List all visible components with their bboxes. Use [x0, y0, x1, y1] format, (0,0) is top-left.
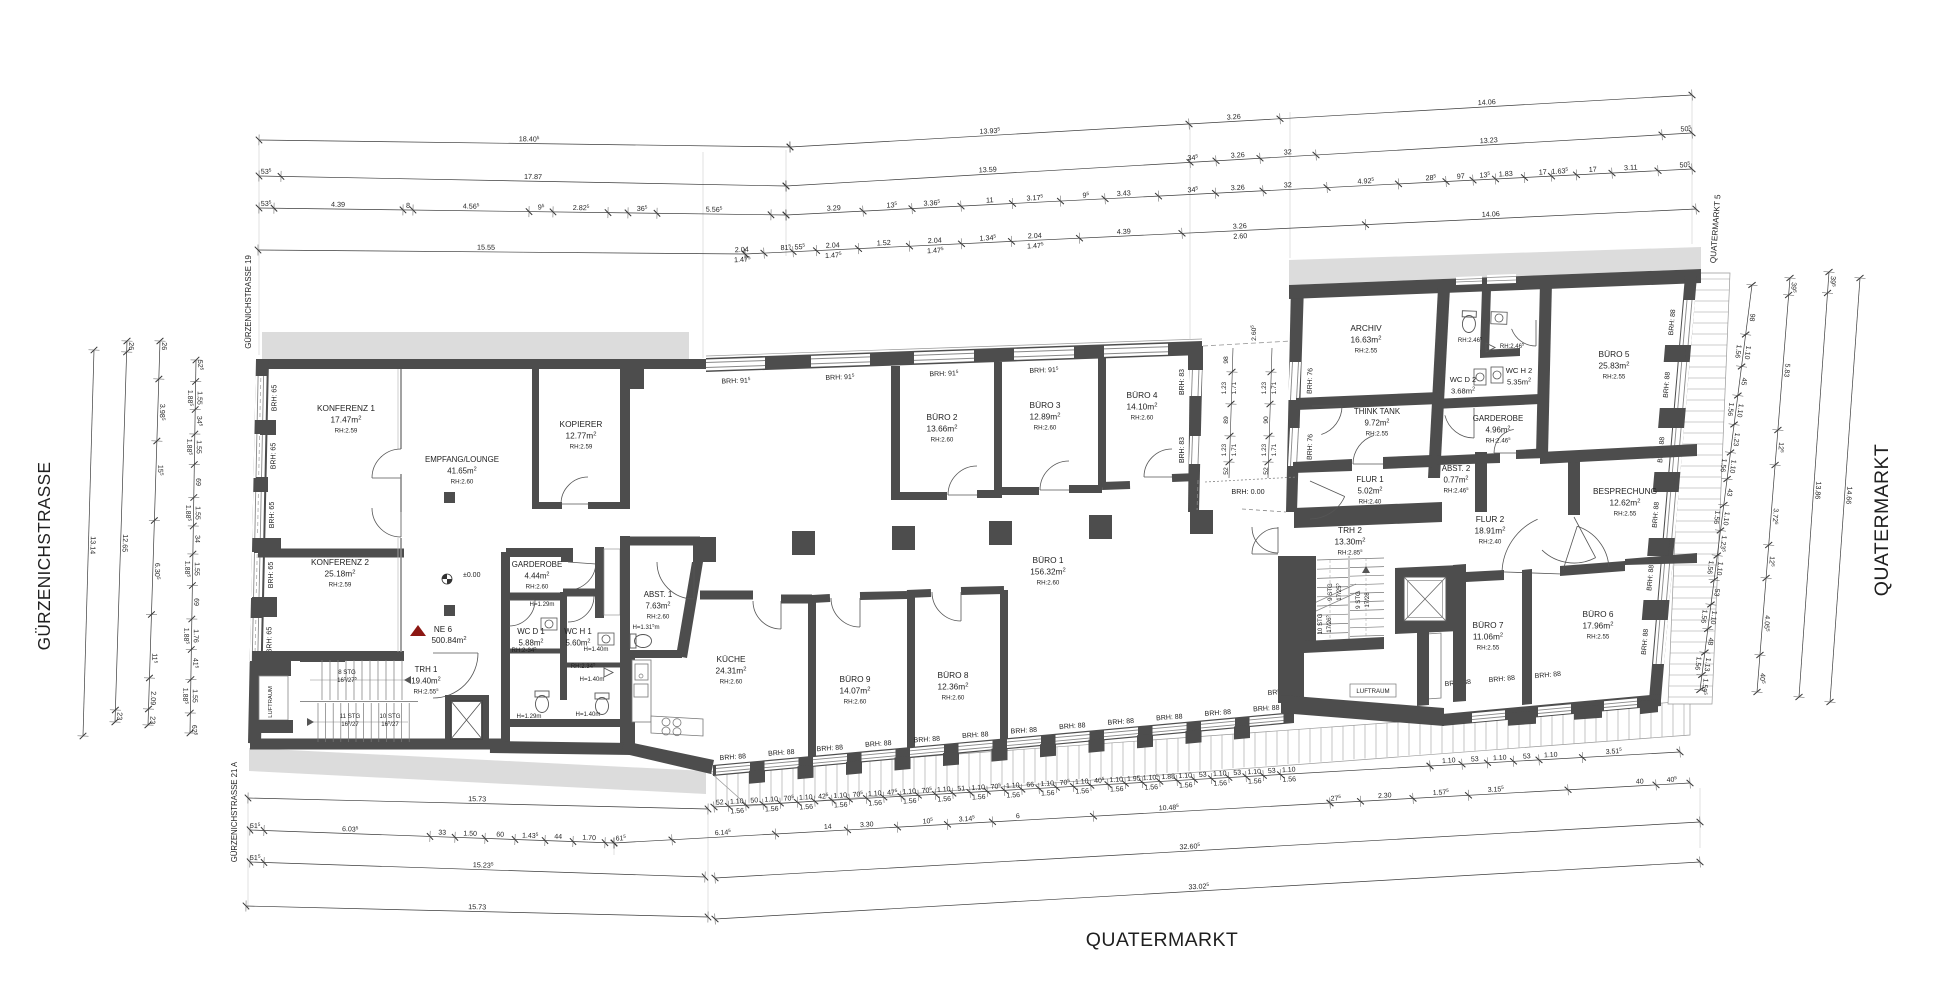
svg-text:RH:2.40: RH:2.40	[1479, 539, 1502, 546]
svg-text:H=1.40m: H=1.40m	[580, 676, 605, 683]
svg-text:1.10: 1.10	[1006, 782, 1020, 790]
svg-text:1.56: 1.56	[765, 806, 779, 814]
svg-text:1.10: 1.10	[937, 786, 951, 794]
svg-text:32: 32	[1284, 180, 1292, 189]
svg-text:BRH: 915: BRH: 915	[1029, 365, 1059, 374]
svg-text:2.04: 2.04	[928, 235, 942, 245]
svg-text:1.10: 1.10	[1040, 780, 1054, 788]
svg-text:1.10: 1.10	[971, 784, 985, 792]
svg-text:1.23: 1.23	[1221, 443, 1228, 456]
svg-text:1.56: 1.56	[1110, 786, 1124, 794]
svg-text:KÜCHE: KÜCHE	[716, 654, 746, 664]
svg-text:BRH: 83: BRH: 83	[1179, 437, 1186, 463]
svg-text:14.66: 14.66	[1844, 486, 1854, 505]
svg-text:60: 60	[496, 832, 504, 839]
svg-text:53: 53	[1268, 768, 1276, 775]
svg-text:3.26: 3.26	[1231, 150, 1246, 160]
svg-text:3.11: 3.11	[1624, 163, 1638, 173]
svg-text:1.56: 1.56	[1075, 788, 1089, 796]
svg-text:2.04: 2.04	[826, 240, 840, 250]
svg-text:BÜRO 5: BÜRO 5	[1599, 349, 1630, 359]
svg-text:ARCHIV: ARCHIV	[1350, 323, 1382, 333]
svg-text:51: 51	[957, 785, 965, 792]
svg-text:5.02m2: 5.02m2	[1357, 487, 1382, 496]
svg-text:1.10: 1.10	[833, 792, 847, 800]
svg-text:QUATERMARKT: QUATERMARKT	[1086, 929, 1238, 951]
svg-text:1.56: 1.56	[730, 808, 744, 816]
svg-text:14.06: 14.06	[1482, 209, 1500, 219]
svg-text:1.23: 1.23	[1261, 381, 1268, 394]
svg-text:GARDEROBE: GARDEROBE	[1473, 414, 1523, 423]
svg-text:BRH: 76: BRH: 76	[1307, 368, 1315, 394]
svg-text:1.55: 1.55	[193, 562, 200, 576]
svg-text:1.56: 1.56	[903, 798, 917, 806]
svg-text:98: 98	[1223, 356, 1230, 364]
svg-text:24.31m2: 24.31m2	[716, 666, 747, 676]
svg-text:13.30m2: 13.30m2	[1335, 537, 1366, 547]
svg-text:4.39: 4.39	[1117, 227, 1131, 237]
svg-text:1.56: 1.56	[799, 804, 813, 812]
svg-text:98: 98	[1748, 313, 1756, 322]
svg-text:97: 97	[1457, 171, 1465, 180]
svg-text:13.86: 13.86	[1813, 481, 1823, 500]
svg-text:50: 50	[750, 797, 758, 804]
svg-text:RH:2.465: RH:2.465	[1486, 436, 1512, 444]
svg-text:RH:2.345: RH:2.345	[571, 662, 596, 670]
svg-text:RH:2.60: RH:2.60	[942, 695, 965, 702]
svg-text:10 STG: 10 STG	[1317, 613, 1324, 634]
svg-text:H=1.315m: H=1.315m	[632, 623, 659, 631]
svg-text:WC H 1: WC H 1	[564, 627, 592, 636]
svg-text:8: 8	[406, 201, 410, 210]
svg-text:17: 17	[1589, 165, 1597, 174]
svg-text:BÜRO 1: BÜRO 1	[1033, 555, 1064, 565]
svg-text:165/27: 165/27	[381, 720, 399, 728]
svg-text:RH:2.60: RH:2.60	[526, 584, 549, 591]
svg-text:26: 26	[160, 342, 169, 350]
svg-text:90: 90	[1263, 416, 1270, 424]
svg-text:1.10: 1.10	[1544, 752, 1558, 760]
svg-text:BESPRECHUNG: BESPRECHUNG	[1593, 486, 1657, 496]
svg-text:EMPFANG/LOUNGE: EMPFANG/LOUNGE	[425, 455, 499, 464]
svg-text:GÜRZENICHSTRASSE 19: GÜRZENICHSTRASSE 19	[244, 255, 253, 349]
svg-text:1.10: 1.10	[1178, 772, 1192, 780]
svg-text:40: 40	[1636, 778, 1644, 785]
svg-text:KONFERENZ 1: KONFERENZ 1	[317, 403, 375, 413]
svg-text:156.32m2: 156.32m2	[1030, 567, 1066, 577]
svg-text:8 STG: 8 STG	[338, 669, 356, 676]
svg-text:3.68m2: 3.68m2	[1451, 387, 1475, 396]
svg-text:RH:2.55: RH:2.55	[1614, 511, 1637, 518]
svg-text:7.63m2: 7.63m2	[645, 602, 670, 611]
svg-text:32: 32	[1283, 147, 1292, 156]
svg-text:TRH 2: TRH 2	[1338, 525, 1362, 535]
svg-text:QUATERMARKT: QUATERMARKT	[1871, 444, 1893, 596]
svg-text:WC D 1: WC D 1	[517, 627, 545, 636]
svg-text:NE 6: NE 6	[434, 625, 453, 634]
svg-text:13.66m2: 13.66m2	[927, 424, 958, 434]
svg-text:1.10: 1.10	[1247, 769, 1261, 777]
svg-text:52: 52	[1263, 467, 1270, 475]
svg-text:13.59: 13.59	[979, 164, 997, 174]
svg-text:2.60: 2.60	[1233, 231, 1247, 241]
svg-text:BRH: 915: BRH: 915	[721, 376, 751, 385]
svg-text:FLUR 2: FLUR 2	[1476, 514, 1505, 524]
svg-text:15.55: 15.55	[477, 243, 495, 252]
svg-text:WC H 2: WC H 2	[1506, 366, 1533, 375]
svg-text:5.60m2: 5.60m2	[565, 639, 590, 648]
svg-text:69: 69	[192, 598, 199, 606]
svg-text:BRH: 0.00: BRH: 0.00	[1231, 487, 1264, 496]
svg-text:1.95: 1.95	[1127, 775, 1141, 783]
svg-text:RH:2.40: RH:2.40	[1359, 499, 1382, 506]
svg-text:25.18m2: 25.18m2	[325, 569, 356, 579]
svg-text:1.10: 1.10	[1109, 776, 1123, 784]
svg-text:RH:2.60: RH:2.60	[451, 479, 474, 486]
svg-text:48: 48	[1706, 637, 1714, 646]
svg-text:1.10: 1.10	[1442, 757, 1456, 765]
svg-text:1.88: 1.88	[1161, 773, 1175, 781]
svg-text:RH:2.55: RH:2.55	[1366, 431, 1389, 438]
svg-text:1.56: 1.56	[972, 794, 986, 802]
svg-text:1.10: 1.10	[1075, 778, 1089, 786]
svg-text:1.10: 1.10	[1213, 770, 1227, 778]
svg-text:0.77m2: 0.77m2	[1443, 476, 1468, 485]
svg-text:1.83: 1.83	[1499, 169, 1513, 179]
svg-text:26: 26	[127, 342, 136, 350]
svg-text:3.30: 3.30	[860, 821, 874, 829]
svg-text:165/275: 165/275	[337, 676, 357, 684]
svg-text:KONFERENZ 2: KONFERENZ 2	[311, 557, 369, 567]
svg-text:17: 17	[1539, 167, 1547, 176]
svg-text:34: 34	[193, 535, 200, 543]
svg-text:1.71: 1.71	[1231, 443, 1238, 456]
svg-text:53: 53	[1233, 770, 1241, 777]
svg-text:RH:2.59: RH:2.59	[570, 444, 593, 451]
svg-text:BÜRO 3: BÜRO 3	[1030, 400, 1061, 410]
svg-text:BRH: 83: BRH: 83	[1179, 369, 1186, 395]
svg-text:BRH: 76: BRH: 76	[1307, 434, 1315, 460]
svg-text:ABST. 2: ABST. 2	[1442, 464, 1471, 473]
svg-text:9 STG: 9 STG	[1327, 583, 1334, 601]
svg-text:53: 53	[1523, 753, 1531, 760]
svg-text:1.56: 1.56	[834, 802, 848, 810]
svg-text:RH:2.55: RH:2.55	[1477, 645, 1500, 652]
svg-text:23: 23	[148, 716, 157, 724]
svg-text:3.29: 3.29	[827, 203, 841, 213]
svg-text:BÜRO 8: BÜRO 8	[938, 670, 969, 680]
svg-text:RH:2.855: RH:2.855	[1338, 548, 1364, 556]
svg-text:17/28: 17/28	[1364, 592, 1371, 608]
svg-text:1.55: 1.55	[194, 506, 201, 520]
svg-text:45: 45	[1739, 377, 1747, 386]
svg-text:RH:2.60: RH:2.60	[931, 437, 954, 444]
svg-text:BRH: 65: BRH: 65	[267, 627, 274, 654]
svg-text:12.77m2: 12.77m2	[566, 431, 597, 441]
svg-text:ABST. 1: ABST. 1	[644, 590, 673, 599]
svg-text:1.10: 1.10	[764, 796, 778, 804]
svg-text:9 STG: 9 STG	[1355, 591, 1362, 609]
svg-text:BÜRO 7: BÜRO 7	[1473, 620, 1504, 630]
svg-text:1.56: 1.56	[1248, 778, 1262, 786]
svg-text:±0.00: ±0.00	[463, 572, 481, 579]
svg-text:5.35m2: 5.35m2	[1507, 378, 1531, 387]
svg-text:THINK TANK: THINK TANK	[1354, 407, 1401, 416]
svg-text:BRH: 65: BRH: 65	[272, 385, 279, 412]
svg-text:RH:2.60: RH:2.60	[720, 679, 743, 686]
svg-text:2.09: 2.09	[149, 691, 158, 705]
svg-text:RH:2.55: RH:2.55	[1355, 348, 1378, 355]
svg-text:BRH: 915: BRH: 915	[929, 369, 959, 378]
svg-text:1.52: 1.52	[877, 238, 891, 248]
svg-text:4.39: 4.39	[331, 200, 345, 209]
svg-text:RH:2.55: RH:2.55	[1603, 374, 1626, 381]
svg-text:1.56: 1.56	[1282, 776, 1296, 784]
svg-text:53: 53	[1199, 772, 1207, 779]
svg-text:RH:2.465: RH:2.465	[1444, 486, 1470, 494]
svg-text:43: 43	[1725, 488, 1733, 497]
svg-text:1.70: 1.70	[582, 835, 596, 842]
svg-text:H=1.29m: H=1.29m	[530, 601, 555, 608]
svg-text:BRH: 915: BRH: 915	[825, 372, 855, 381]
svg-text:52: 52	[716, 799, 724, 806]
svg-text:10.485: 10.485	[1159, 803, 1180, 813]
svg-text:RH:2.59: RH:2.59	[329, 582, 352, 589]
svg-text:5.83: 5.83	[1782, 363, 1790, 377]
svg-text:15.73: 15.73	[468, 902, 486, 911]
svg-text:32.605: 32.605	[1179, 841, 1200, 851]
svg-text:1.10: 1.10	[902, 788, 916, 796]
svg-text:33: 33	[438, 830, 446, 837]
svg-text:LUFTRAUM: LUFTRAUM	[268, 686, 274, 718]
svg-text:4.96m2: 4.96m2	[1485, 426, 1510, 435]
svg-text:14: 14	[824, 824, 832, 831]
svg-text:2.04: 2.04	[1028, 231, 1042, 241]
svg-text:1.56: 1.56	[1179, 782, 1193, 790]
svg-text:13.14: 13.14	[88, 536, 98, 554]
svg-text:1.10: 1.10	[1282, 767, 1296, 775]
svg-text:BRH: 65: BRH: 65	[269, 502, 276, 529]
svg-text:44: 44	[554, 834, 562, 841]
svg-text:H=1.29m: H=1.29m	[517, 713, 542, 720]
svg-text:14.06: 14.06	[1478, 97, 1496, 107]
svg-text:14.10m2: 14.10m2	[1127, 402, 1158, 412]
svg-text:89: 89	[1223, 416, 1230, 424]
svg-text:1.10: 1.10	[868, 790, 882, 798]
svg-text:FLUR 1: FLUR 1	[1356, 475, 1383, 484]
svg-text:1.10: 1.10	[1493, 755, 1507, 763]
svg-text:11.06m2: 11.06m2	[1473, 632, 1503, 642]
svg-text:5.88m2: 5.88m2	[518, 639, 543, 648]
svg-text:KOPIERER: KOPIERER	[560, 419, 603, 429]
svg-text:BÜRO 4: BÜRO 4	[1127, 390, 1158, 400]
svg-text:500.84m2: 500.84m2	[431, 636, 466, 645]
svg-text:1.56: 1.56	[937, 796, 951, 804]
svg-text:17.47m2: 17.47m2	[331, 415, 362, 425]
svg-text:66: 66	[1026, 781, 1034, 788]
svg-text:18.91m2: 18.91m2	[1475, 526, 1506, 536]
svg-text:1.56: 1.56	[868, 800, 882, 808]
svg-text:19.40m2: 19.40m2	[411, 677, 440, 686]
svg-text:53: 53	[1712, 588, 1720, 597]
svg-text:1.71: 1.71	[1271, 443, 1278, 456]
svg-text:25.83m2: 25.83m2	[1599, 361, 1630, 371]
svg-text:17.96m2: 17.96m2	[1583, 621, 1614, 631]
svg-text:9.72m2: 9.72m2	[1364, 419, 1389, 428]
svg-text:6: 6	[1016, 813, 1020, 820]
svg-text:12.89m2: 12.89m2	[1030, 412, 1061, 422]
svg-text:3.26: 3.26	[1227, 112, 1241, 122]
svg-text:13.23: 13.23	[1480, 135, 1498, 145]
svg-text:17.87: 17.87	[524, 172, 542, 181]
svg-text:H=1.40m: H=1.40m	[576, 711, 601, 718]
svg-text:16.63m2: 16.63m2	[1351, 335, 1382, 345]
svg-text:11: 11	[986, 195, 994, 204]
svg-text:1.55: 1.55	[195, 440, 202, 454]
svg-text:2.04: 2.04	[735, 245, 749, 255]
svg-text:53: 53	[1471, 756, 1479, 763]
svg-text:41.65m2: 41.65m2	[447, 467, 476, 476]
svg-text:BRH: 65: BRH: 65	[270, 443, 277, 470]
svg-text:RH:2.60: RH:2.60	[1034, 425, 1057, 432]
svg-text:1.56: 1.56	[1144, 784, 1158, 792]
svg-text:13.935: 13.935	[979, 126, 1000, 136]
svg-text:1.10: 1.10	[730, 798, 744, 806]
svg-text:RH:2.59: RH:2.59	[335, 428, 358, 435]
svg-text:TRH 1: TRH 1	[415, 665, 438, 674]
svg-text:GÜRZENICHSTRASSE 21 A: GÜRZENICHSTRASSE 21 A	[230, 761, 239, 862]
svg-text:4.44m2: 4.44m2	[524, 572, 549, 581]
svg-text:RH:2.60: RH:2.60	[647, 614, 670, 621]
svg-text:RH:2.60: RH:2.60	[844, 699, 867, 706]
svg-text:BÜRO 2: BÜRO 2	[927, 412, 958, 422]
svg-text:12.36m2: 12.36m2	[938, 682, 969, 692]
svg-text:RH:2.60: RH:2.60	[1131, 415, 1154, 422]
svg-text:GARDEROBE: GARDEROBE	[512, 560, 562, 569]
svg-text:1.55: 1.55	[191, 689, 198, 703]
svg-text:1.71: 1.71	[1271, 381, 1278, 394]
svg-text:165/27: 165/27	[341, 720, 359, 728]
svg-text:2.30: 2.30	[1378, 792, 1392, 800]
svg-text:3.43: 3.43	[1117, 188, 1131, 198]
svg-text:3.26: 3.26	[1233, 221, 1247, 231]
svg-text:1.55: 1.55	[195, 391, 202, 405]
svg-text:LUFTRAUM: LUFTRAUM	[1356, 688, 1389, 695]
svg-text:33.025: 33.025	[1188, 881, 1209, 891]
svg-text:RH:2.60: RH:2.60	[1037, 580, 1060, 587]
svg-text:1.56: 1.56	[1213, 780, 1227, 788]
svg-text:BRH: 65: BRH: 65	[268, 562, 275, 589]
svg-text:1.76: 1.76	[192, 629, 199, 643]
svg-text:12.65: 12.65	[121, 534, 131, 552]
svg-text:1.56: 1.56	[1006, 792, 1020, 800]
svg-text:1.56: 1.56	[1041, 790, 1055, 798]
svg-text:BÜRO 9: BÜRO 9	[840, 674, 871, 684]
svg-text:69: 69	[194, 478, 201, 486]
svg-text:1.23: 1.23	[1221, 381, 1228, 394]
svg-text:RH:2.55: RH:2.55	[1587, 634, 1610, 641]
svg-text:GÜRZENICHSTRASSE: GÜRZENICHSTRASSE	[34, 462, 54, 651]
svg-text:BÜRO 6: BÜRO 6	[1583, 609, 1614, 619]
svg-text:WC D 2: WC D 2	[1450, 375, 1477, 384]
svg-text:18.405: 18.405	[519, 134, 540, 143]
svg-text:23: 23	[115, 712, 124, 720]
svg-text:12.62m2: 12.62m2	[1610, 498, 1641, 508]
svg-text:1.23: 1.23	[1261, 443, 1268, 456]
svg-text:1.50: 1.50	[463, 830, 477, 837]
svg-text:15.73: 15.73	[468, 794, 486, 803]
svg-text:14.07m2: 14.07m2	[840, 686, 871, 696]
svg-text:1.10: 1.10	[799, 794, 813, 802]
svg-text:RH:2.555: RH:2.555	[414, 687, 440, 695]
svg-text:3.26: 3.26	[1231, 183, 1245, 193]
